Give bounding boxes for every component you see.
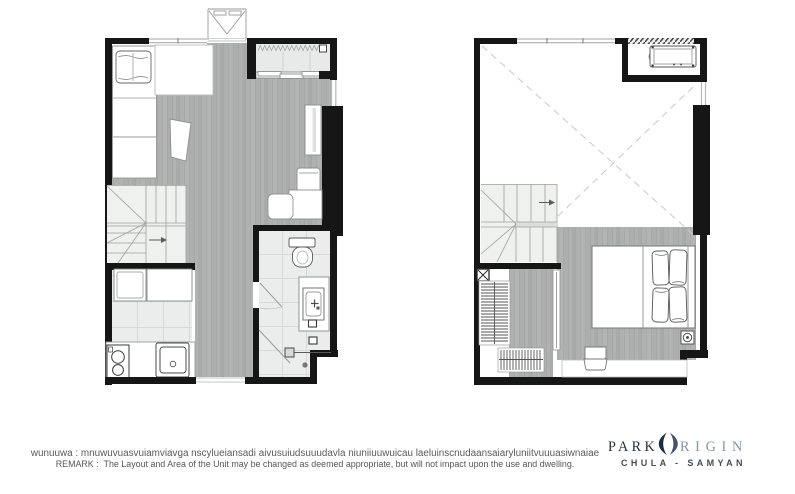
svg-text:wunuuwa : mnuwuvuasvuiamviavga: wunuuwa : mnuwuvuasvuiamviavga nscylueia… xyxy=(30,448,600,459)
svg-text:PARK: PARK xyxy=(608,439,658,455)
svg-text:RIGIN: RIGIN xyxy=(680,439,748,455)
svg-text:CHULA - SAMYAN: CHULA - SAMYAN xyxy=(621,458,746,468)
svg-text:REMARK : The Layout and Area: REMARK : The Layout and Area of the Unit… xyxy=(56,459,575,469)
